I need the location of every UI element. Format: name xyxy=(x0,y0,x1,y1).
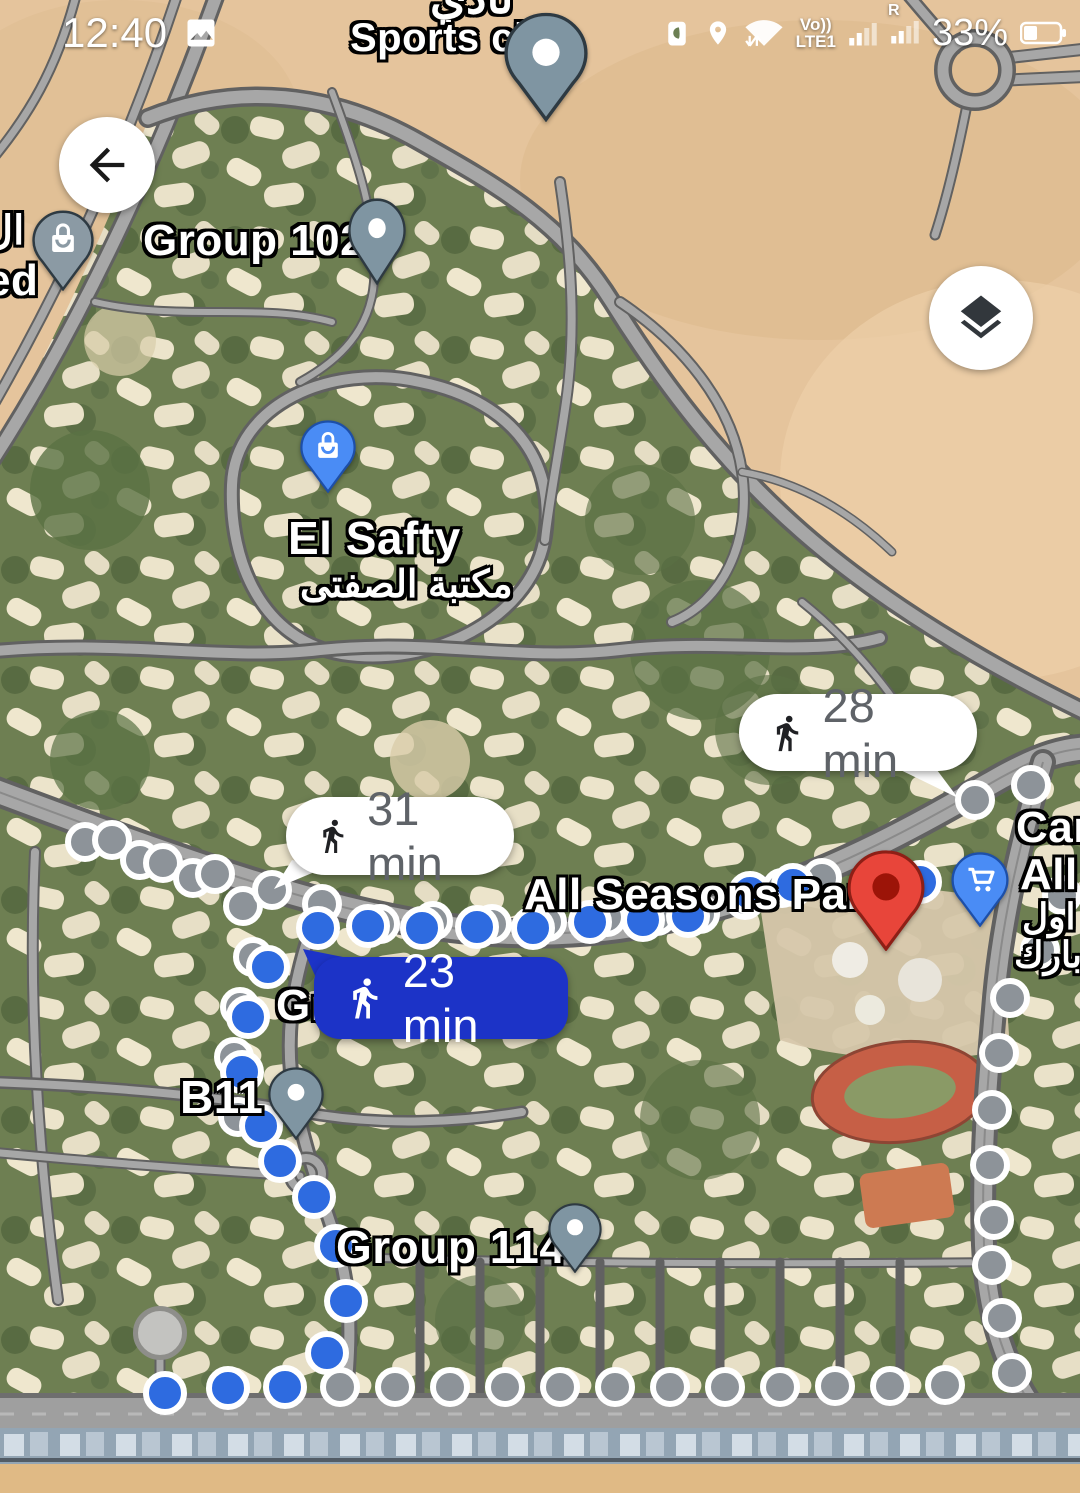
battery-saver-icon xyxy=(662,16,692,50)
walking-icon xyxy=(342,975,387,1021)
walking-icon xyxy=(314,814,351,858)
layers-icon xyxy=(954,291,1008,345)
back-button[interactable] xyxy=(59,117,155,213)
label-arabic-park-partial: بارك xyxy=(1014,934,1080,976)
wifi-arrows-icon xyxy=(744,15,784,51)
label-all-seasons-park[interactable]: All Seasons Park xyxy=(524,870,889,920)
destination-pin[interactable] xyxy=(847,850,925,956)
battery-icon xyxy=(1020,20,1066,46)
group-114-pin[interactable] xyxy=(548,1203,602,1278)
label-car-partial: Car xyxy=(1016,803,1080,853)
maps-app-screen: .cas{fill:none;stroke:#616161;stroke-lin… xyxy=(0,0,1080,1493)
bottom-sand xyxy=(0,1464,1080,1493)
label-left-arabic-partial: ال xyxy=(0,208,24,254)
buildings-strip xyxy=(0,1428,1080,1464)
battery-percentage: 33% xyxy=(932,12,1008,55)
label-all-partial: All xyxy=(1020,850,1078,900)
label-el-safty[interactable]: El Safty xyxy=(288,511,461,565)
network-label: LTE1 xyxy=(796,33,836,50)
duration-31min: 31 min xyxy=(367,781,486,891)
label-b11[interactable]: B11 xyxy=(180,1070,263,1124)
label-group-114[interactable]: Group 114 xyxy=(336,1220,565,1274)
signal-bars-sim2-icon xyxy=(890,16,920,46)
route-option-23min-selected[interactable]: 23 min xyxy=(314,957,568,1039)
label-group-102[interactable]: Group 102 xyxy=(143,216,365,266)
label-arabic-awel-partial: اول xyxy=(1022,896,1076,938)
network-type-block: Vo)) LTE1 xyxy=(796,16,836,50)
group-102-pin[interactable] xyxy=(348,198,406,290)
el-safty-pin[interactable] xyxy=(300,420,356,498)
duration-23min: 23 min xyxy=(403,943,540,1053)
location-active-icon xyxy=(704,16,732,50)
walking-icon xyxy=(767,711,806,755)
route-option-28min[interactable]: 28 min xyxy=(739,694,977,771)
route-option-31min[interactable]: 31 min xyxy=(286,797,514,875)
status-bar: 12:40 Vo)) LTE1 xyxy=(0,0,1080,66)
signal-bars-sim2: R xyxy=(890,16,920,51)
b11-pin[interactable] xyxy=(268,1067,324,1145)
clock: 12:40 xyxy=(62,9,167,57)
roaming-label: R xyxy=(888,2,900,20)
gallery-icon xyxy=(183,15,219,51)
duration-28min: 28 min xyxy=(822,678,949,788)
signal-bars-sim1-icon xyxy=(848,18,878,48)
volte-label: Vo)) xyxy=(800,16,832,33)
back-arrow-icon xyxy=(81,139,133,191)
shopping-pin-left[interactable] xyxy=(32,210,94,296)
label-el-safty-arabic: مكتبة الصفتى xyxy=(300,562,513,607)
layers-button[interactable] xyxy=(929,266,1033,370)
supermarket-cart-pin[interactable] xyxy=(951,852,1009,932)
